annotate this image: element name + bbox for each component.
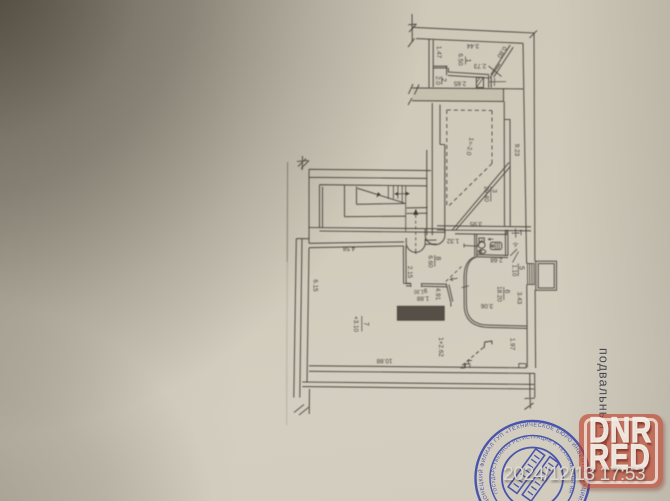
svg-text:1.97: 1.97 [508, 338, 515, 351]
svg-text:9.23: 9.23 [513, 144, 520, 157]
svg-text:9: 9 [423, 287, 427, 294]
svg-text:2.0: 2.0 [434, 76, 441, 85]
svg-text:+3.10: +3.10 [352, 316, 359, 332]
svg-text:1=-2.0: 1=-2.0 [464, 137, 474, 156]
svg-text:6.60: 6.60 [427, 255, 434, 268]
svg-text:1.32: 1.32 [446, 237, 459, 244]
svg-text:-б-: -б- [512, 241, 519, 247]
svg-text:4.58: 4.58 [342, 244, 355, 251]
svg-text:1.30: 1.30 [414, 288, 424, 294]
svg-text:3.44: 3.44 [466, 42, 479, 49]
svg-text:10.88: 10.88 [376, 357, 392, 364]
svg-text:1: 1 [465, 59, 472, 63]
svg-text:6.15: 6.15 [312, 279, 319, 292]
svg-text:3: 3 [490, 189, 497, 193]
svg-text:2.65: 2.65 [453, 80, 466, 87]
svg-text:4.91: 4.91 [434, 288, 441, 301]
svg-text:3.95: 3.95 [469, 220, 482, 227]
svg-text:1.10: 1.10 [511, 265, 517, 277]
svg-text:6: 6 [503, 290, 510, 294]
svg-text:8: 8 [434, 257, 441, 261]
svg-text:2.73: 2.73 [473, 62, 486, 69]
svg-text:1+2.62: 1+2.62 [437, 337, 444, 357]
svg-text:2: 2 [440, 78, 447, 82]
svg-text:1.47: 1.47 [435, 46, 442, 59]
svg-text:18.20: 18.20 [496, 286, 503, 302]
svg-text:3.43: 3.43 [515, 292, 522, 305]
svg-text:3.06: 3.06 [480, 302, 493, 309]
svg-text:29.40: 29.40 [483, 186, 490, 202]
svg-text:1.88: 1.88 [416, 295, 429, 302]
svg-text:2.15: 2.15 [406, 266, 413, 279]
svg-text:6.50: 6.50 [457, 53, 464, 66]
svg-text:7: 7 [362, 322, 369, 326]
svg-text:2.68: 2.68 [490, 256, 503, 263]
svg-text:5: 5 [517, 266, 524, 270]
